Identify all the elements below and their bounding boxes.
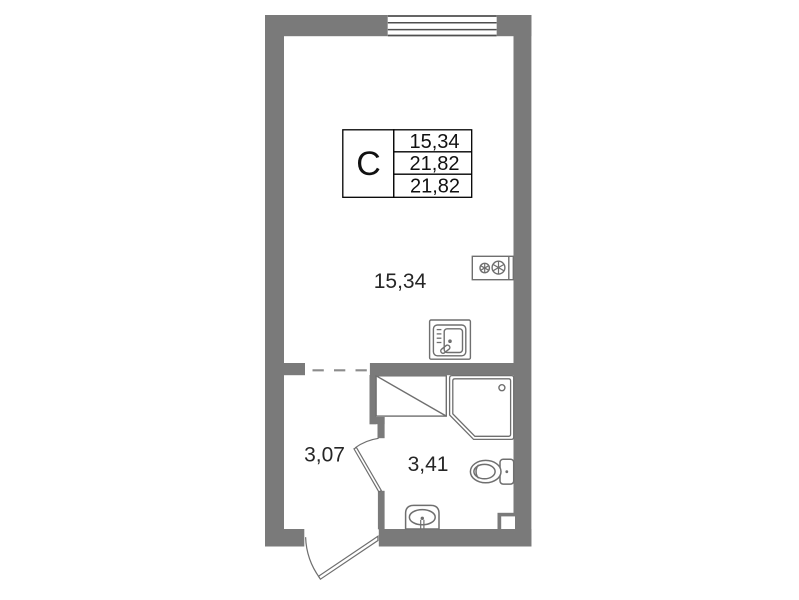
svg-text:С: С bbox=[356, 145, 381, 183]
svg-text:15,34: 15,34 bbox=[409, 131, 459, 153]
svg-text:3,41: 3,41 bbox=[408, 453, 449, 476]
svg-text:21,82: 21,82 bbox=[410, 176, 460, 198]
svg-text:21,82: 21,82 bbox=[409, 153, 459, 175]
svg-text:3,07: 3,07 bbox=[304, 444, 345, 467]
svg-text:15,34: 15,34 bbox=[374, 270, 427, 293]
